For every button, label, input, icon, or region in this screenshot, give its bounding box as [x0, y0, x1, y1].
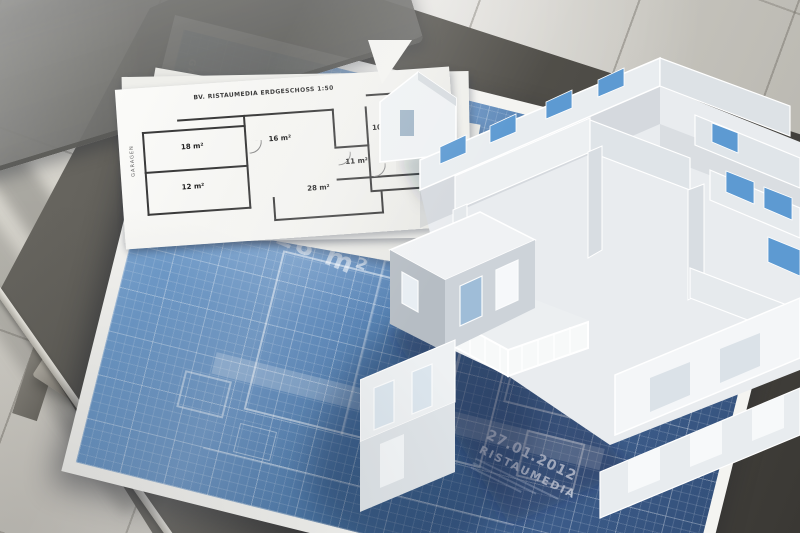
wall-segment [243, 115, 252, 209]
blueprint-model-scene: GARAGEN BV. RISTAUMEDIA ERDGE 28 m² 27.0… [0, 0, 800, 533]
room-label: 16 m² [268, 134, 291, 144]
wall-segment [177, 109, 334, 122]
room-label: 18 m² [181, 142, 204, 152]
wall-segment [148, 207, 252, 216]
floorplan-title: BV. RISTAUMEDIA ERDGESCHOSS 1:50 [193, 85, 334, 102]
blueprint-plan-room-outline [176, 370, 232, 418]
wall-segment [145, 165, 249, 174]
house-model-3d [360, 40, 800, 533]
wall-segment [142, 125, 246, 134]
door-arc [249, 140, 263, 154]
paper-corner [368, 40, 412, 84]
floorplan-side-label: GARAGEN [129, 145, 137, 177]
room-label: 12 m² [182, 182, 205, 192]
room-label: 28 m² [307, 183, 330, 193]
wall-segment [273, 197, 277, 221]
model-lower-left-wing [360, 340, 455, 512]
wall-segment [332, 109, 337, 147]
